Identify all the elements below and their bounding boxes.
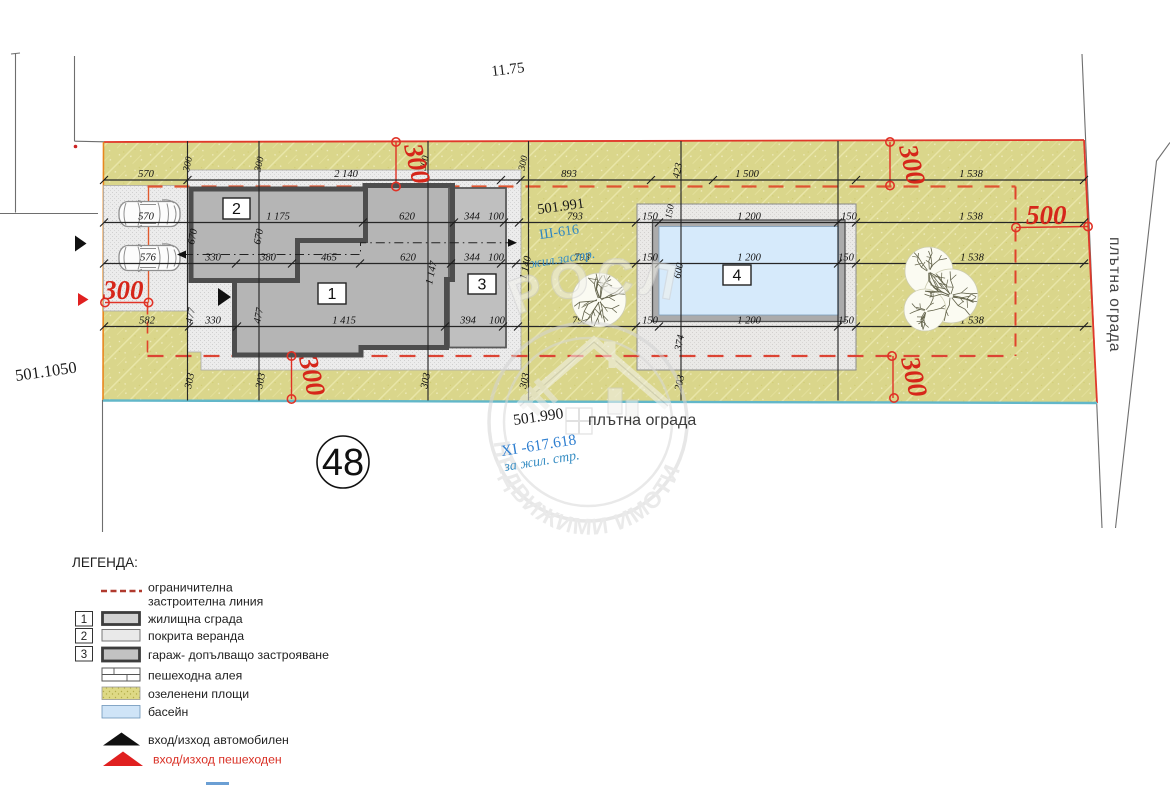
svg-text:2 140: 2 140 <box>334 169 358 180</box>
svg-text:1 538: 1 538 <box>959 212 983 223</box>
svg-text:100: 100 <box>488 253 505 264</box>
svg-text:вход/изход пешеходен: вход/изход пешеходен <box>153 753 282 767</box>
svg-text:1 500: 1 500 <box>735 169 759 180</box>
svg-text:330: 330 <box>204 253 222 264</box>
svg-text:394: 394 <box>459 316 477 327</box>
svg-text:330: 330 <box>204 316 222 327</box>
svg-text:3: 3 <box>478 277 487 294</box>
svg-text:100: 100 <box>489 316 506 327</box>
svg-text:150: 150 <box>841 212 858 223</box>
svg-text:344: 344 <box>463 253 481 264</box>
svg-text:гараж- допълващо застрояване: гараж- допълващо застрояване <box>148 648 329 662</box>
svg-text:плътна ограда: плътна ограда <box>1106 237 1123 352</box>
svg-text:1 200: 1 200 <box>737 253 761 264</box>
svg-text:501.1050: 501.1050 <box>14 358 78 385</box>
svg-text:380: 380 <box>259 253 277 264</box>
svg-text:344: 344 <box>463 212 481 223</box>
svg-text:150: 150 <box>838 316 855 327</box>
svg-text:501.990: 501.990 <box>512 405 564 429</box>
svg-text:465: 465 <box>321 253 337 264</box>
svg-text:100: 100 <box>488 212 505 223</box>
svg-text:плътна ограда: плътна ограда <box>588 412 696 429</box>
svg-text:300: 300 <box>102 275 144 305</box>
svg-text:3: 3 <box>81 649 87 661</box>
svg-text:1 415: 1 415 <box>332 316 356 327</box>
svg-text:ЛЕГЕНДА:: ЛЕГЕНДА: <box>72 555 138 570</box>
svg-text:застроителна линия: застроителна линия <box>148 595 263 609</box>
svg-text:576: 576 <box>140 253 157 264</box>
svg-text:570: 570 <box>138 169 155 180</box>
svg-text:48: 48 <box>322 442 364 484</box>
svg-text:570: 570 <box>138 212 155 223</box>
svg-text:2: 2 <box>81 631 87 643</box>
svg-text:1: 1 <box>81 614 87 626</box>
svg-text:150: 150 <box>642 212 659 223</box>
svg-text:пешеходна алея: пешеходна алея <box>148 669 242 683</box>
svg-text:1 538: 1 538 <box>960 253 984 264</box>
svg-text:150: 150 <box>642 316 659 327</box>
svg-text:582: 582 <box>139 316 156 327</box>
svg-text:покрита веранда: покрита веранда <box>148 629 244 643</box>
svg-text:620: 620 <box>400 253 417 264</box>
svg-text:озеленени площи: озеленени площи <box>148 687 249 701</box>
svg-text:620: 620 <box>399 212 416 223</box>
svg-text:жилищна сграда: жилищна сграда <box>148 612 243 626</box>
svg-text:150: 150 <box>838 253 855 264</box>
svg-text:893: 893 <box>561 169 577 180</box>
svg-text:1: 1 <box>328 286 337 303</box>
svg-text:1 538: 1 538 <box>959 169 983 180</box>
svg-text:2: 2 <box>232 201 241 218</box>
svg-text:1 200: 1 200 <box>737 316 761 327</box>
svg-text:1 175: 1 175 <box>266 212 290 223</box>
svg-text:басейн: басейн <box>148 705 188 719</box>
svg-text:4: 4 <box>733 268 742 285</box>
svg-text:вход/изход автомобилен: вход/изход автомобилен <box>148 733 289 747</box>
svg-text:11.75: 11.75 <box>491 60 526 80</box>
svg-text:500: 500 <box>1026 200 1067 230</box>
svg-text:1 200: 1 200 <box>737 212 761 223</box>
svg-text:ограничителна: ограничителна <box>148 581 233 595</box>
